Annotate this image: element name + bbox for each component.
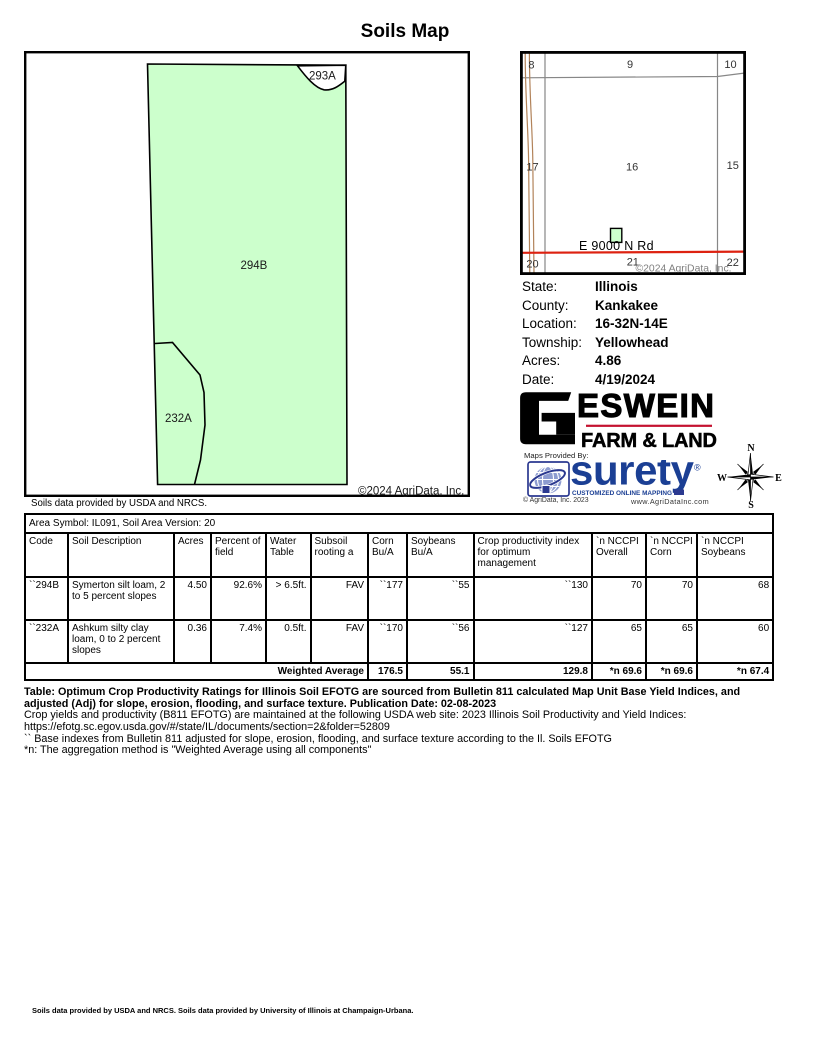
svg-text:16: 16 xyxy=(626,161,638,173)
svg-text:8: 8 xyxy=(528,60,534,72)
svg-text:E 9000 N Rd: E 9000 N Rd xyxy=(579,239,654,253)
svg-text:9: 9 xyxy=(627,59,633,71)
svg-text:232A: 232A xyxy=(165,413,192,425)
svg-text:20: 20 xyxy=(526,259,538,271)
svg-text:S: S xyxy=(748,500,754,511)
svg-text:E: E xyxy=(775,473,782,484)
svg-text:17: 17 xyxy=(526,161,538,173)
svg-text:W: W xyxy=(717,473,727,484)
svg-text:®: ® xyxy=(694,463,701,473)
svg-text:293A: 293A xyxy=(309,71,336,83)
svg-text:surety: surety xyxy=(570,460,695,494)
svg-text:FARM & LAND: FARM & LAND xyxy=(581,430,717,452)
svg-text:N: N xyxy=(747,443,755,454)
svg-text:ESWEIN: ESWEIN xyxy=(577,390,713,424)
svg-text:10: 10 xyxy=(724,59,736,71)
svg-text:15: 15 xyxy=(727,160,739,172)
svg-text:CUSTOMIZED ONLINE MAPPING: CUSTOMIZED ONLINE MAPPING xyxy=(572,490,672,497)
svg-text:294B: 294B xyxy=(241,260,268,272)
svg-text:©2024 AgriData, Inc.: ©2024 AgriData, Inc. xyxy=(358,486,464,498)
